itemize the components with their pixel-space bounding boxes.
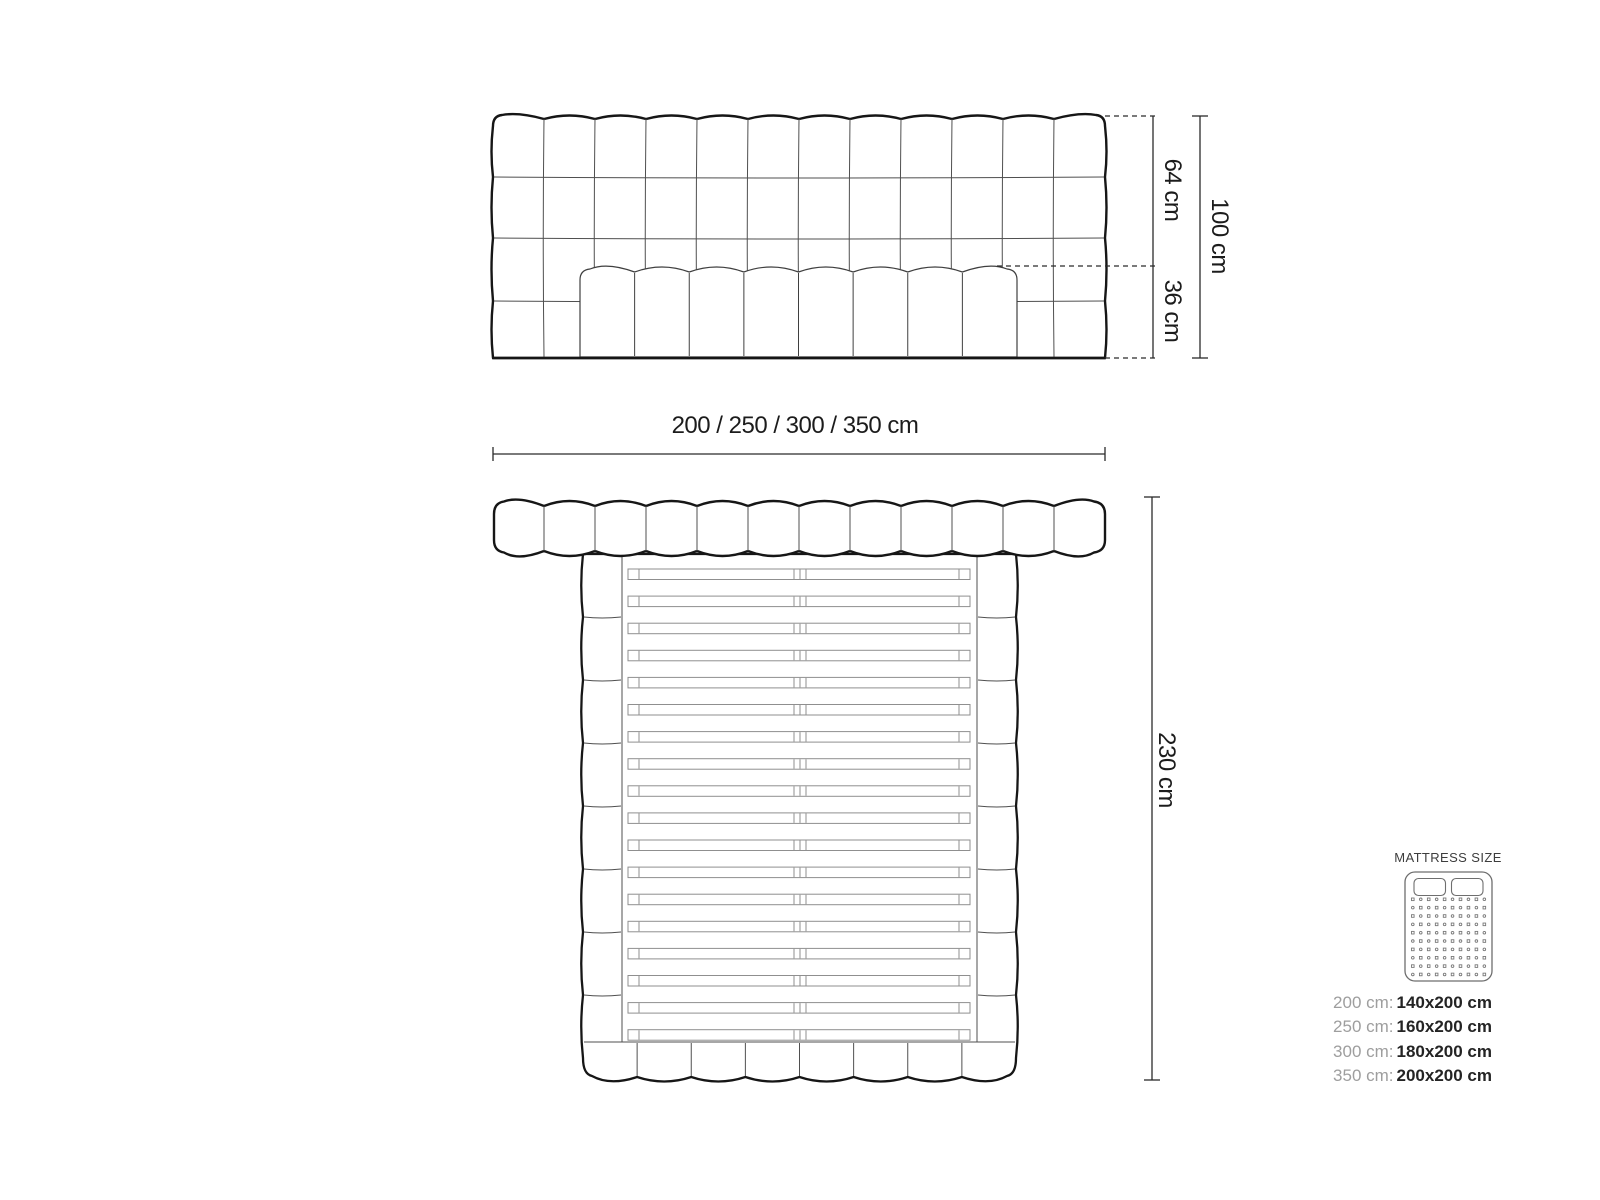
- size-row: 300 cm:180x200 cm: [1320, 1040, 1492, 1064]
- mattress-size-value: 200x200 cm: [1397, 1066, 1492, 1085]
- frame-width-label: 250 cm:: [1333, 1017, 1393, 1036]
- size-row: 250 cm:160x200 cm: [1320, 1015, 1492, 1039]
- size-row: 200 cm:140x200 cm: [1320, 991, 1492, 1015]
- mattress-size-value: 180x200 cm: [1397, 1042, 1492, 1061]
- mattress-size-value: 140x200 cm: [1397, 993, 1492, 1012]
- mattress-size-table: 200 cm:140x200 cm 250 cm:160x200 cm 300 …: [1320, 991, 1492, 1089]
- frame-width-label: 300 cm:: [1333, 1042, 1393, 1061]
- bed-dimension-sheet: 200 / 250 / 300 / 350 cm 64 cm 36 cm 100…: [0, 0, 1600, 1200]
- mattress-size-value: 160x200 cm: [1397, 1017, 1492, 1036]
- width-dimension-label: 200 / 250 / 300 / 350 cm: [672, 412, 919, 440]
- length-dimension-label: 230 cm: [1152, 732, 1180, 808]
- frame-width-label: 350 cm:: [1333, 1066, 1393, 1085]
- size-row: 350 cm:200x200 cm: [1320, 1064, 1492, 1088]
- total-height-dimension-label: 100 cm: [1205, 198, 1233, 274]
- upper-height-dimension-label: 64 cm: [1158, 159, 1186, 222]
- frame-width-label: 200 cm:: [1333, 993, 1393, 1012]
- lower-height-dimension-label: 36 cm: [1158, 280, 1186, 343]
- mattress-size-title: MATTRESS SIZE: [1388, 850, 1508, 865]
